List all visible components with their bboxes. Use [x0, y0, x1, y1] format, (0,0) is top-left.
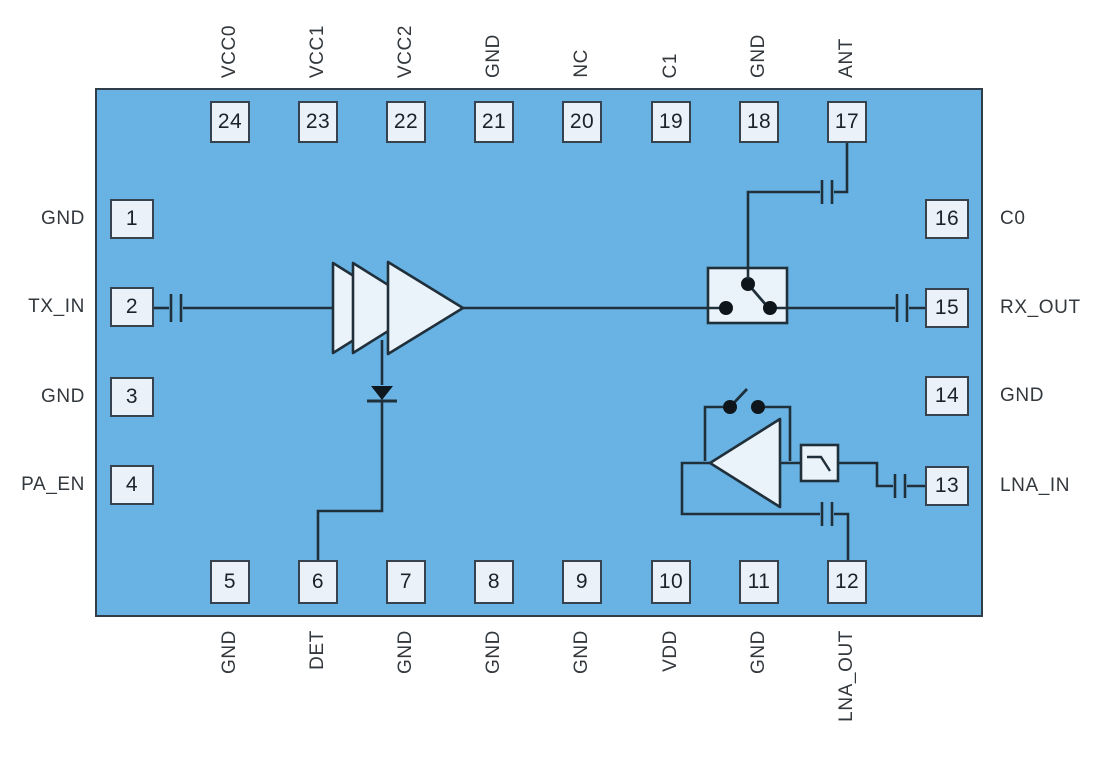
pin-23-label: VCC1: [306, 25, 329, 78]
pin-15: 15: [925, 288, 969, 328]
pin-14-label: GND: [1000, 384, 1044, 408]
pin-17: 17: [827, 101, 867, 143]
detector-branch-wire: [318, 340, 397, 561]
pin-24-label: VCC0: [218, 25, 241, 78]
pin-6: 6: [298, 560, 338, 604]
pin-8-label: GND: [482, 630, 505, 674]
pin-14: 14: [925, 376, 969, 416]
pin-11-label: GND: [747, 630, 770, 674]
pin-1-label: GND: [41, 207, 85, 231]
lowpass-filter-icon: [801, 445, 838, 481]
pin-7: 7: [386, 560, 426, 604]
pin-16: 16: [925, 199, 969, 239]
pin-1: 1: [110, 199, 154, 239]
pin-2-label: TX_IN: [28, 295, 85, 319]
pin-20: 20: [562, 101, 602, 143]
antenna-wire: [748, 143, 847, 279]
rx-dc-block-capacitor-icon: [897, 294, 907, 322]
pin-23: 23: [298, 101, 338, 143]
pin-10: 10: [651, 560, 691, 604]
pin-5: 5: [210, 560, 250, 604]
detector-diode-icon: [367, 386, 397, 401]
pin-24: 24: [210, 101, 250, 143]
pin-21: 21: [474, 101, 514, 143]
pin-18: 18: [739, 101, 779, 143]
pin-15-label: RX_OUT: [1000, 296, 1081, 320]
lna-out-dc-block-capacitor-icon: [822, 502, 832, 526]
pin-4-label: PA_EN: [21, 473, 85, 497]
pin-18-label: GND: [747, 34, 770, 78]
pin-3-label: GND: [41, 385, 85, 409]
pin-13-label: LNA_IN: [1000, 474, 1070, 498]
pin-22: 22: [386, 101, 426, 143]
tx-amplifier-icon: [333, 262, 463, 354]
pin-5-label: GND: [218, 630, 241, 674]
pin-16-label: C0: [1000, 207, 1026, 231]
lna-amplifier-icon: [710, 419, 780, 507]
pin-10-label: VDD: [659, 630, 682, 672]
pin-4: 4: [110, 465, 154, 505]
pin-12-label: LNA_OUT: [835, 630, 858, 722]
pin-11: 11: [739, 560, 779, 604]
chip-pinout-diagram: 24 23 22 21 20 19 18 17 5 6 7 8 9 10 11 …: [0, 0, 1100, 757]
ant-dc-block-capacitor-icon: [822, 180, 832, 204]
tx-dc-block-capacitor-icon: [171, 294, 181, 322]
tx-input-wire: [154, 294, 336, 322]
pin-12: 12: [827, 560, 867, 604]
pin-22-label: VCC2: [394, 25, 417, 78]
pin-13: 13: [925, 466, 969, 506]
pin-2: 2: [110, 287, 154, 327]
pin-6-label: DET: [306, 630, 329, 670]
lna-input-wire: [838, 463, 927, 498]
rx-output-wire: [787, 294, 927, 322]
pin-19: 19: [651, 101, 691, 143]
pin-9: 9: [562, 560, 602, 604]
pin-3: 3: [110, 377, 154, 417]
pin-20-label: NC: [570, 49, 593, 78]
pin-17-label: ANT: [835, 38, 858, 78]
lna-in-dc-block-capacitor-icon: [895, 474, 905, 498]
pin-8: 8: [474, 560, 514, 604]
pin-7-label: GND: [394, 630, 417, 674]
pin-19-label: C1: [659, 53, 682, 79]
pin-9-label: GND: [570, 630, 593, 674]
pin-21-label: GND: [482, 34, 505, 78]
